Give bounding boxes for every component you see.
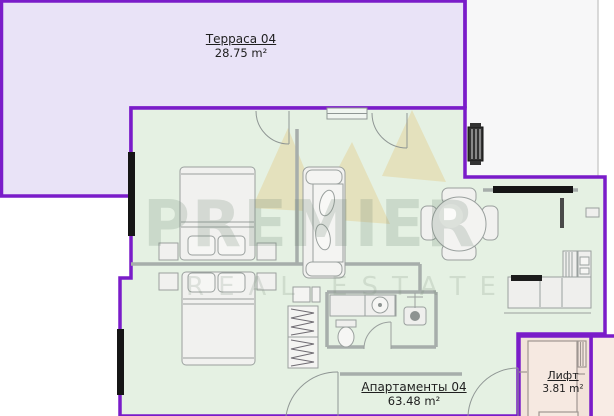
- apartment-area-value: 63.48 m²: [339, 395, 489, 408]
- wall-shelf: [586, 208, 599, 217]
- apartment-name: Апартаменты 04: [339, 381, 489, 395]
- watermark-premier-text: PREMIER: [143, 188, 477, 262]
- kitchen-counter: [508, 277, 591, 308]
- toilet-tank: [336, 320, 356, 327]
- watermark-real-estate-text: REAL ESTATE: [186, 272, 510, 302]
- window-bedroom1: [128, 152, 135, 236]
- elevator-counterweight: [578, 341, 586, 367]
- elevator-area-value: 3.81 m²: [523, 383, 603, 395]
- window-bedroom2: [117, 329, 124, 395]
- outside-area: [467, 0, 598, 177]
- terrace-window: [327, 108, 367, 119]
- apartment-label: Апартаменты 04 63.48 m²: [339, 381, 489, 408]
- terrace-name: Терраса 04: [166, 33, 316, 47]
- kitchen-sink: [580, 257, 589, 265]
- elevator-door: [539, 412, 578, 416]
- terrace-area-value: 28.75 m²: [166, 47, 316, 60]
- elevator-name: Лифт: [523, 370, 603, 383]
- toilet: [338, 327, 354, 347]
- window-living: [493, 186, 573, 193]
- ac-unit: [468, 123, 483, 165]
- cooktop: [511, 275, 542, 281]
- floor-plan: PREMIER REAL ESTATE Терраса 04 28.75 m² …: [0, 0, 614, 416]
- terrace-label: Терраса 04 28.75 m²: [166, 33, 316, 60]
- elevator-label: Лифт 3.81 m²: [523, 370, 603, 395]
- nightstand: [159, 273, 178, 290]
- wall-radiator: [560, 198, 564, 228]
